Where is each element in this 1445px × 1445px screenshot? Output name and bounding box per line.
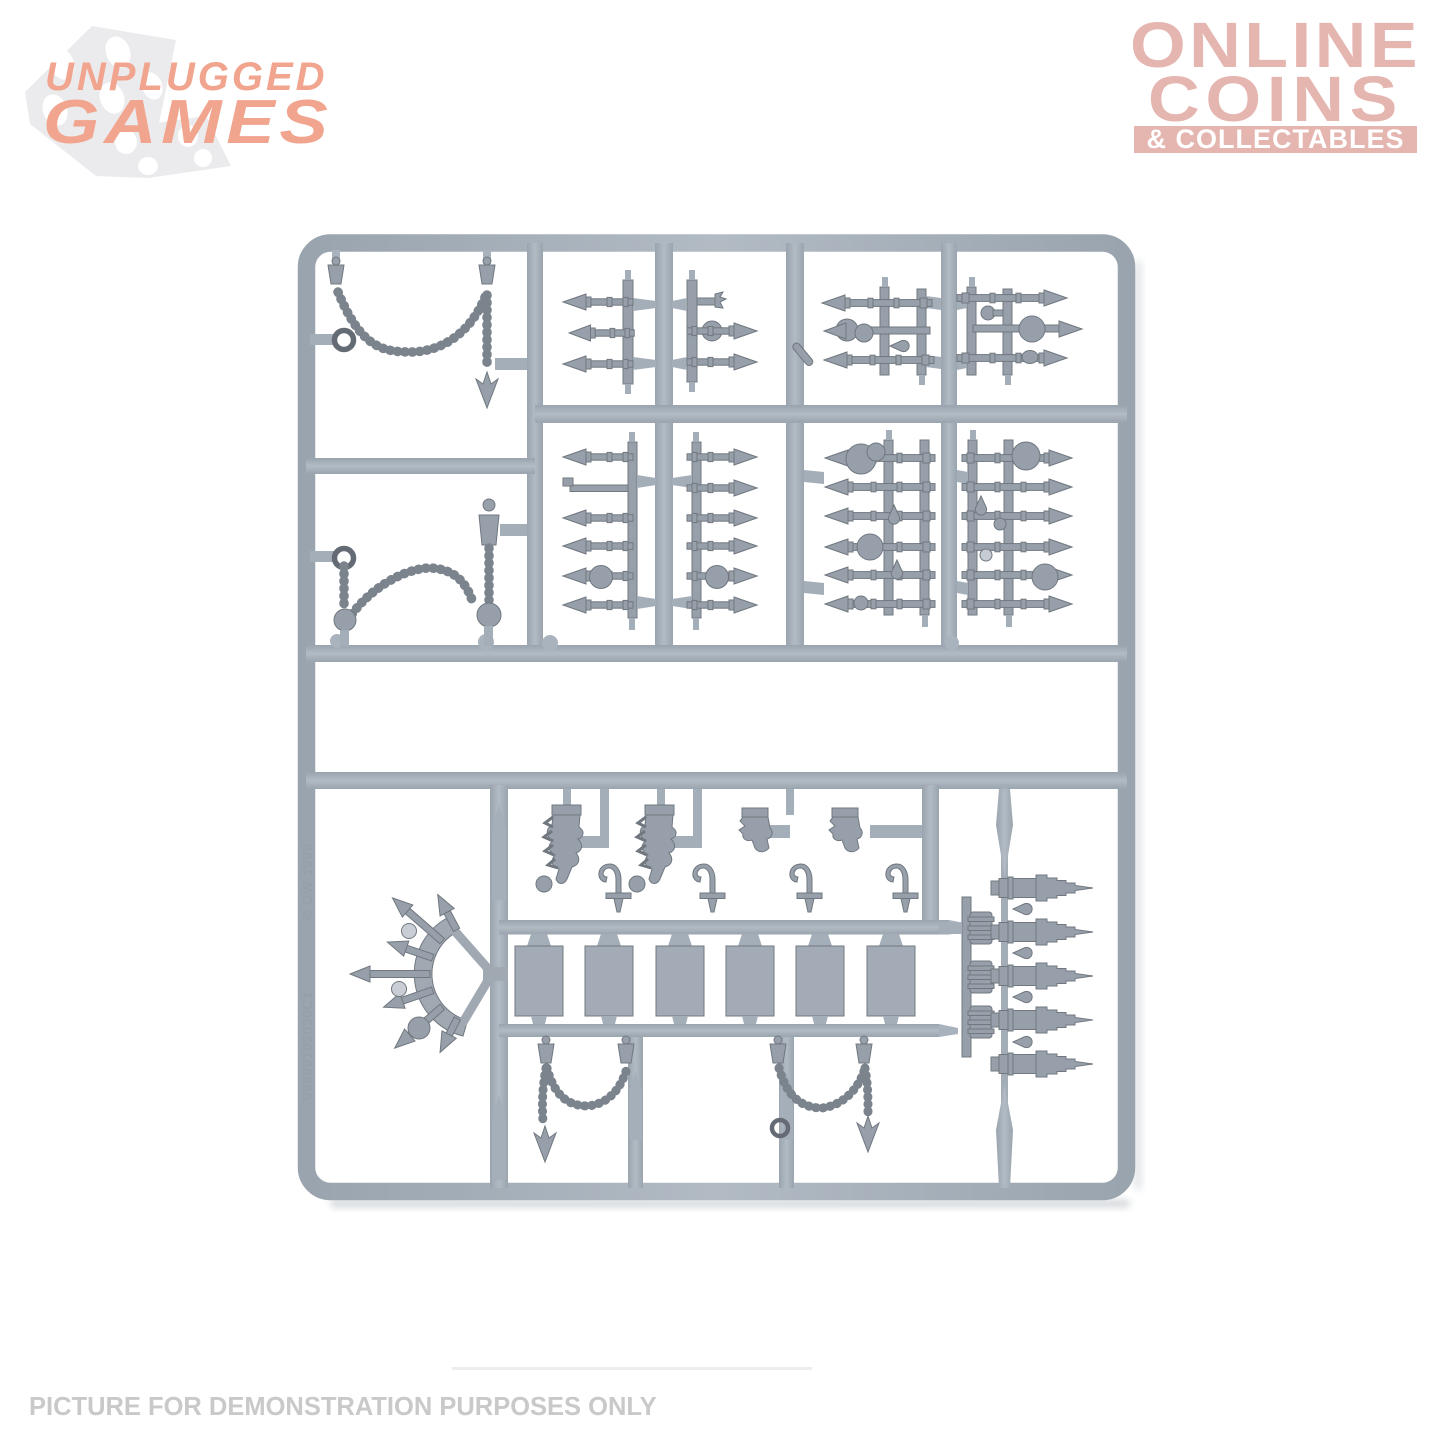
svg-text:© GW 1999: © GW 1999 bbox=[300, 843, 315, 920]
svg-text:99599102030C1: 99599102030C1 bbox=[300, 991, 315, 1100]
